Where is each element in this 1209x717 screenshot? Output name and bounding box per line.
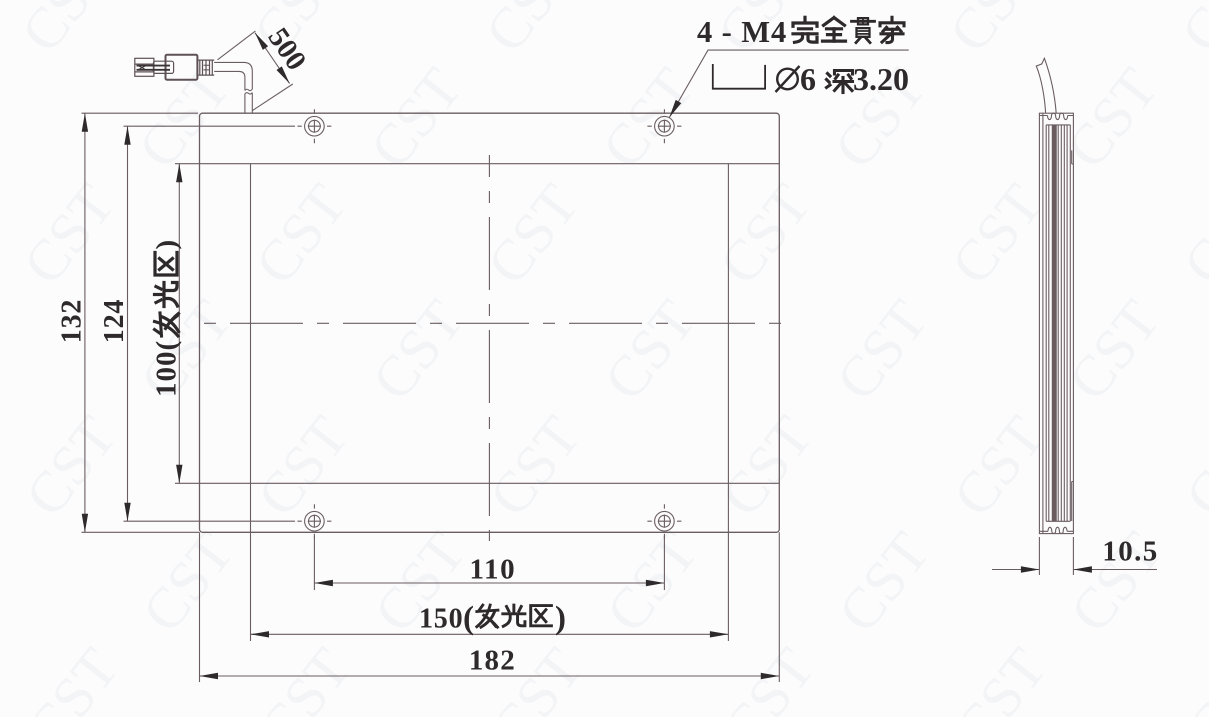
svg-text:4 - M4: 4 - M4 bbox=[697, 15, 787, 49]
svg-text:100(: 100( bbox=[151, 340, 183, 397]
svg-text:182: 182 bbox=[469, 644, 516, 676]
svg-text:150: 150 bbox=[419, 603, 463, 634]
svg-text:124: 124 bbox=[99, 299, 130, 343]
svg-text:132: 132 bbox=[57, 299, 88, 343]
svg-text:3.20: 3.20 bbox=[853, 61, 909, 97]
svg-text:110: 110 bbox=[470, 553, 517, 585]
svg-text:(: ( bbox=[463, 600, 474, 636]
svg-text:): ) bbox=[555, 600, 566, 636]
svg-text:6: 6 bbox=[800, 61, 816, 97]
svg-text:): ) bbox=[151, 240, 183, 250]
svg-text:10.5: 10.5 bbox=[1102, 536, 1158, 568]
